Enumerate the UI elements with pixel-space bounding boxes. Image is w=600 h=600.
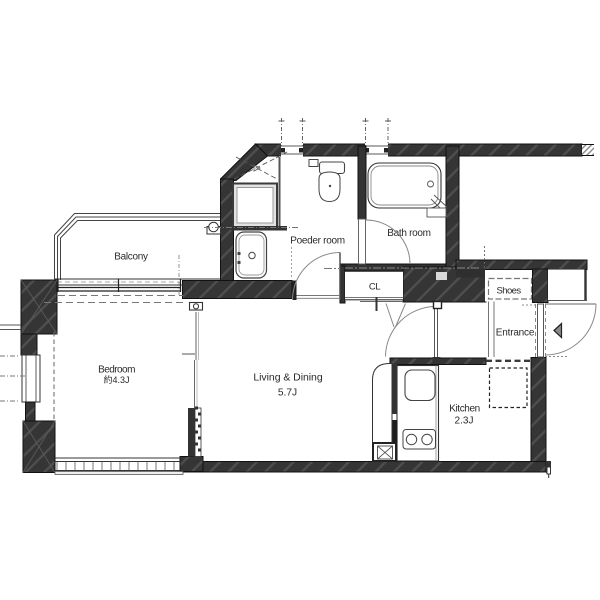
svg-text:約4.3J: 約4.3J — [103, 374, 129, 385]
svg-text:2.3J: 2.3J — [455, 416, 474, 427]
svg-text:Bedroom: Bedroom — [98, 365, 135, 376]
svg-text:Living & Dining: Living & Dining — [253, 372, 322, 384]
svg-text:CL: CL — [369, 282, 380, 293]
svg-text:Shoes: Shoes — [497, 286, 522, 297]
svg-text:5.7J: 5.7J — [278, 388, 297, 399]
svg-text:Poeder room: Poeder room — [290, 236, 345, 247]
svg-text:Balcony: Balcony — [114, 252, 148, 263]
svg-text:Entrance: Entrance — [496, 328, 535, 339]
svg-text:Kitchen: Kitchen — [449, 404, 480, 415]
